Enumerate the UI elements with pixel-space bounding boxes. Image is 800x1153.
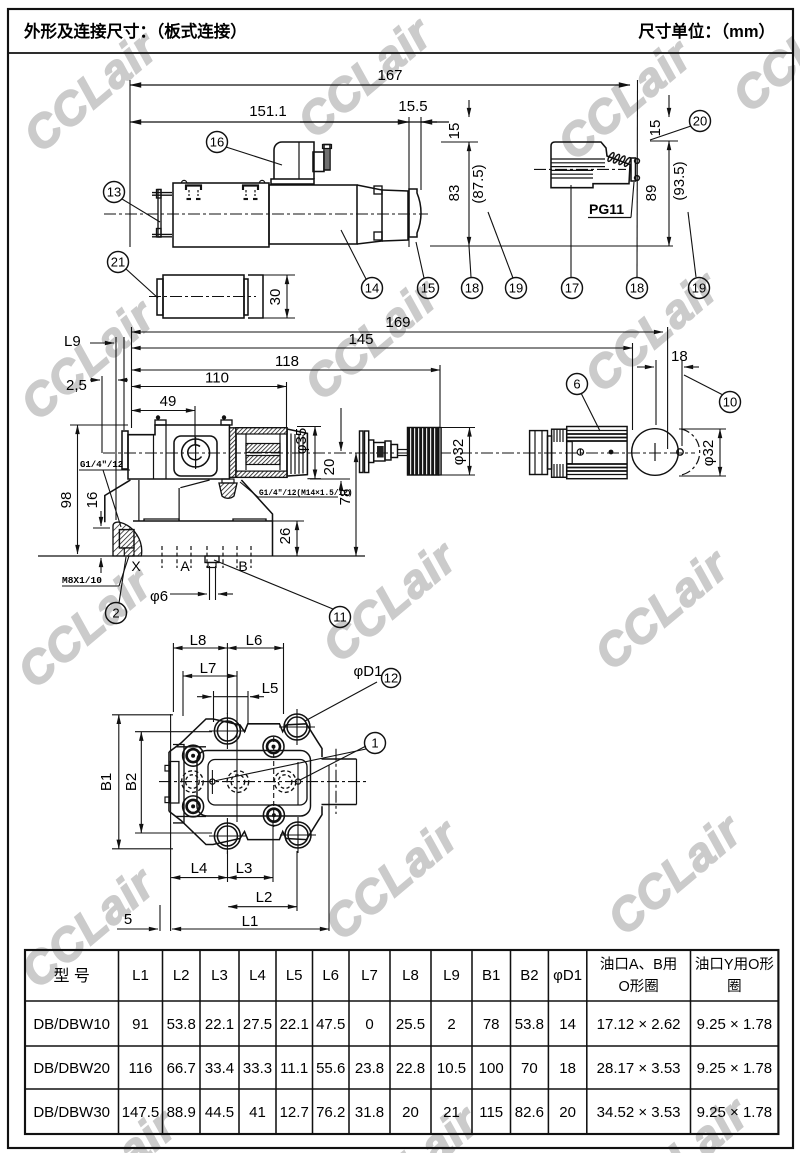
svg-text:19: 19 (692, 281, 706, 296)
svg-text:L5: L5 (262, 680, 279, 697)
svg-text:34.52 × 3.53: 34.52 × 3.53 (597, 1104, 681, 1121)
svg-text:(93.5): (93.5) (671, 161, 688, 200)
svg-text:41: 41 (249, 1104, 266, 1121)
svg-text:0: 0 (365, 1016, 373, 1033)
svg-text:9.25 × 1.78: 9.25 × 1.78 (697, 1060, 772, 1077)
svg-text:53.8: 53.8 (167, 1016, 196, 1033)
svg-text:L1: L1 (132, 967, 149, 984)
svg-text:DB/DBW30: DB/DBW30 (33, 1104, 110, 1121)
svg-text:L4: L4 (191, 860, 208, 877)
svg-text:14: 14 (559, 1016, 576, 1033)
svg-text:φ6: φ6 (150, 588, 168, 605)
svg-text:L8: L8 (190, 632, 207, 649)
svg-text:22.1: 22.1 (280, 1016, 309, 1033)
svg-text:φD1: φD1 (553, 967, 582, 984)
svg-text:44.5: 44.5 (205, 1104, 234, 1121)
svg-text:15: 15 (647, 120, 664, 137)
svg-text:18: 18 (559, 1060, 576, 1077)
svg-text:G1/4"/12: G1/4"/12 (80, 460, 123, 470)
svg-text:16: 16 (210, 135, 224, 150)
svg-text:89: 89 (643, 185, 660, 202)
svg-text:47.5: 47.5 (316, 1016, 345, 1033)
svg-text:外形及连接尺寸：（板式连接）: 外形及连接尺寸：（板式连接） (24, 21, 247, 41)
svg-text:21: 21 (443, 1104, 460, 1121)
svg-text:115: 115 (479, 1104, 503, 1121)
svg-text:L7: L7 (361, 967, 378, 984)
svg-text:82.6: 82.6 (515, 1104, 544, 1121)
svg-text:100: 100 (479, 1060, 504, 1077)
svg-text:L6: L6 (322, 967, 339, 984)
svg-text:25.5: 25.5 (396, 1016, 425, 1033)
svg-text:2: 2 (112, 606, 119, 621)
svg-text:66.7: 66.7 (167, 1060, 196, 1077)
svg-text:16: 16 (84, 492, 101, 509)
svg-text:2: 2 (447, 1016, 455, 1033)
svg-text:L3: L3 (236, 860, 253, 877)
svg-text:X: X (131, 558, 141, 574)
svg-text:12: 12 (384, 671, 398, 686)
svg-text:88.9: 88.9 (167, 1104, 196, 1121)
svg-text:18: 18 (465, 281, 479, 296)
svg-text:33.4: 33.4 (205, 1060, 234, 1077)
svg-text:20: 20 (693, 114, 707, 129)
svg-text:18: 18 (630, 281, 644, 296)
svg-text:2,5: 2,5 (66, 377, 87, 394)
svg-text:φD1: φD1 (354, 663, 383, 680)
svg-text:33.3: 33.3 (243, 1060, 272, 1077)
svg-text:11: 11 (333, 610, 347, 625)
svg-text:15: 15 (446, 123, 463, 140)
svg-text:12.7: 12.7 (280, 1104, 309, 1121)
svg-text:5: 5 (124, 911, 132, 928)
svg-text:21: 21 (111, 255, 125, 270)
svg-text:M8X1/10: M8X1/10 (62, 575, 102, 586)
svg-text:PG11: PG11 (589, 201, 624, 217)
svg-text:9.25 × 1.78: 9.25 × 1.78 (697, 1016, 772, 1033)
svg-text:L4: L4 (249, 967, 266, 984)
svg-text:B2: B2 (520, 967, 538, 984)
svg-text:L9: L9 (443, 967, 460, 984)
svg-text:27.5: 27.5 (243, 1016, 272, 1033)
svg-text:13: 13 (107, 185, 121, 200)
svg-text:L7: L7 (200, 660, 217, 677)
svg-text:167: 167 (377, 67, 402, 84)
svg-text:B1: B1 (482, 967, 500, 984)
svg-text:尺寸单位：（mm）: 尺寸单位：（mm） (638, 21, 775, 41)
svg-text:B1: B1 (98, 773, 115, 791)
svg-text:22.8: 22.8 (396, 1060, 425, 1077)
svg-text:49: 49 (160, 393, 177, 410)
svg-text:B2: B2 (123, 773, 140, 791)
svg-text:26: 26 (277, 528, 294, 545)
svg-text:91: 91 (132, 1016, 149, 1033)
svg-text:O形圈: O形圈 (618, 978, 658, 995)
svg-text:φ32: φ32 (450, 439, 467, 465)
svg-text:17: 17 (565, 281, 579, 296)
svg-text:DB/DBW20: DB/DBW20 (33, 1060, 110, 1077)
svg-text:31.8: 31.8 (355, 1104, 384, 1121)
svg-text:L6: L6 (246, 632, 263, 649)
svg-text:151.1: 151.1 (249, 103, 287, 120)
svg-text:110: 110 (205, 370, 229, 387)
svg-text:19: 19 (509, 281, 523, 296)
svg-text:14: 14 (365, 281, 379, 296)
svg-text:20: 20 (559, 1104, 576, 1121)
svg-text:20: 20 (402, 1104, 419, 1121)
svg-text:53.8: 53.8 (515, 1016, 544, 1033)
svg-text:A: A (180, 558, 190, 574)
svg-text:圈: 圈 (727, 979, 742, 995)
svg-text:L2: L2 (173, 967, 190, 984)
svg-text:118: 118 (275, 353, 299, 370)
svg-text:11.1: 11.1 (280, 1060, 308, 1077)
svg-text:(87.5): (87.5) (470, 164, 487, 203)
svg-text:78: 78 (483, 1016, 500, 1033)
svg-text:145: 145 (348, 331, 373, 348)
svg-text:28.17 × 3.53: 28.17 × 3.53 (597, 1060, 681, 1077)
svg-text:76.2: 76.2 (316, 1104, 345, 1121)
svg-text:169: 169 (385, 314, 410, 331)
svg-text:9.25 × 1.78: 9.25 × 1.78 (697, 1104, 772, 1121)
svg-text:L5: L5 (286, 967, 303, 984)
svg-text:L8: L8 (402, 967, 419, 984)
svg-text:10.5: 10.5 (437, 1060, 466, 1077)
svg-text:22.1: 22.1 (205, 1016, 234, 1033)
svg-text:83: 83 (446, 185, 463, 202)
svg-text:L3: L3 (211, 967, 228, 984)
svg-text:15.5: 15.5 (398, 98, 427, 115)
svg-text:型 号: 型 号 (53, 967, 89, 985)
svg-text:20: 20 (321, 459, 338, 476)
svg-text:φ35: φ35 (293, 428, 310, 454)
svg-text:98: 98 (58, 492, 75, 509)
svg-text:23.8: 23.8 (355, 1060, 384, 1077)
svg-text:1: 1 (371, 736, 378, 751)
svg-text:L2: L2 (256, 889, 273, 906)
svg-text:油口A、B用: 油口A、B用 (600, 956, 677, 973)
svg-text:油口Y用O形: 油口Y用O形 (695, 956, 774, 973)
svg-text:30: 30 (267, 289, 284, 306)
svg-text:10: 10 (723, 395, 737, 410)
svg-text:DB/DBW10: DB/DBW10 (33, 1016, 110, 1033)
svg-text:147.5: 147.5 (122, 1104, 160, 1121)
svg-text:70: 70 (521, 1060, 538, 1077)
svg-text:18: 18 (671, 348, 688, 365)
svg-text:15: 15 (421, 281, 435, 296)
svg-text:φ32: φ32 (700, 440, 717, 466)
svg-text:55.6: 55.6 (316, 1060, 345, 1077)
svg-text:6: 6 (573, 377, 580, 392)
svg-text:L9: L9 (64, 333, 81, 350)
svg-text:116: 116 (129, 1060, 153, 1077)
svg-text:17.12 × 2.62: 17.12 × 2.62 (597, 1016, 681, 1033)
svg-text:L1: L1 (242, 913, 259, 930)
